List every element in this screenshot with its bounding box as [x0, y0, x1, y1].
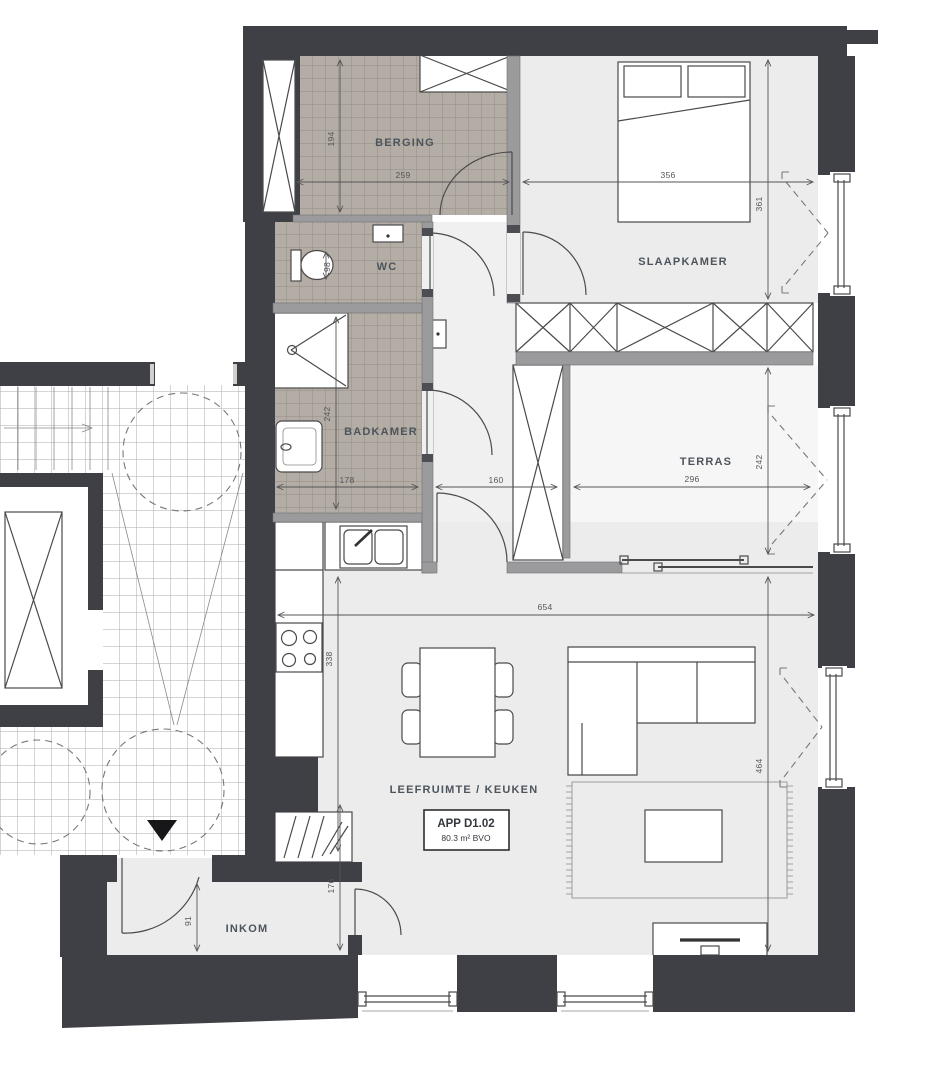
room-label-terras: TERRAS — [680, 456, 732, 468]
dim-terras-height: 242 — [754, 454, 764, 469]
inkom-living-wall — [275, 862, 362, 882]
room-label-badkamer: BADKAMER — [344, 426, 418, 438]
inkom-threshold — [117, 858, 212, 882]
dim-slaapkamer-height: 361 — [754, 196, 764, 211]
unit-info-box: APP D1.02 80.3 m² BVO — [424, 810, 509, 850]
inkom-west-wall — [60, 882, 107, 957]
dim-living-width: 654 — [537, 602, 552, 612]
door-post — [507, 225, 520, 233]
wall-fixture-dot — [436, 332, 439, 335]
room-label-wc: WC — [377, 261, 398, 273]
dim-living-height: 464 — [754, 758, 764, 773]
chair — [402, 710, 422, 744]
closet-wall-stub — [275, 757, 318, 812]
wall-south — [457, 955, 557, 1012]
washbasin-drain-icon — [386, 234, 389, 237]
opening-frame — [233, 364, 237, 384]
wall-north-notch — [847, 30, 878, 44]
living-terras-wall — [507, 562, 622, 573]
unit-area: 80.3 m² BVO — [441, 833, 491, 843]
inkom-wall-post — [348, 935, 362, 955]
berging-south-wall — [293, 215, 432, 222]
elevator-shaft — [0, 487, 88, 705]
elevator — [0, 473, 103, 727]
south-window-1 — [358, 955, 457, 1015]
dim-inkom-height: 176 — [326, 878, 336, 893]
opening-frame — [150, 364, 154, 384]
terras-west-wall — [563, 365, 570, 558]
elevator-door-opening — [88, 610, 103, 670]
stairwell-wall — [0, 362, 155, 386]
inkom-north-wall — [212, 855, 275, 882]
wall-south-east — [653, 955, 855, 1012]
dim-badkamer-height: 242 — [322, 406, 332, 421]
wardrobe — [516, 303, 813, 352]
shower — [273, 313, 348, 388]
inkom-floor — [107, 882, 350, 955]
dim-slaapkamer-width: 356 — [660, 170, 675, 180]
bed — [618, 62, 750, 222]
room-label-leefruimte: LEEFRUIMTE / KEUKEN — [390, 784, 539, 796]
wc-door-opening — [422, 235, 433, 290]
chair — [493, 710, 513, 744]
wall-east — [818, 56, 855, 175]
wall-east — [818, 552, 855, 668]
berging-fixtures — [420, 55, 513, 92]
wc-badkamer-wall — [273, 303, 422, 313]
south-window-2 — [557, 955, 653, 1015]
dim-berging-width: 259 — [395, 170, 410, 180]
dim-terras-width: 296 — [684, 474, 699, 484]
badkamer-south-wall — [273, 513, 422, 522]
wall-north — [243, 26, 847, 56]
unit-id: APP D1.02 — [437, 818, 494, 830]
inkom-north-wall — [60, 855, 117, 882]
door-post — [422, 289, 433, 297]
dining-table — [420, 648, 495, 757]
room-label-slaapkamer: SLAAPKAMER — [638, 256, 728, 268]
duct-shaft — [263, 60, 295, 212]
hall-south-wall — [422, 562, 437, 573]
dim-inkom-width: 91 — [183, 916, 193, 926]
door-post — [422, 454, 433, 462]
dim-keuken-height: 338 — [324, 651, 334, 666]
door-post — [422, 228, 433, 236]
dim-hal-width: 160 — [488, 475, 503, 485]
wc-washbasin — [373, 225, 403, 242]
tv-unit — [653, 923, 767, 957]
door-post — [507, 294, 520, 302]
slaapkamer-terras-wall — [516, 352, 813, 365]
chair — [402, 663, 422, 697]
dim-wc-width: 98 — [322, 262, 332, 272]
floorplan-drawing: BERGING WC SLAAPKAMER BADKAMER TERRAS LE… — [0, 0, 925, 1080]
wall-east — [818, 293, 855, 408]
chair — [493, 663, 513, 697]
wall-west — [245, 222, 275, 882]
toilet-tank — [291, 250, 301, 281]
room-label-inkom: INKOM — [226, 923, 269, 935]
slaapkamer-door-opening — [507, 232, 520, 295]
hall-closet — [513, 365, 563, 560]
room-label-berging: BERGING — [375, 137, 435, 149]
coffee-table — [645, 810, 722, 862]
dim-berging-height: 194 — [326, 131, 336, 146]
dim-badkamer-width: 178 — [339, 475, 354, 485]
floorplan-page: BERGING WC SLAAPKAMER BADKAMER TERRAS LE… — [0, 0, 925, 1080]
wall-south-west — [62, 955, 358, 1028]
